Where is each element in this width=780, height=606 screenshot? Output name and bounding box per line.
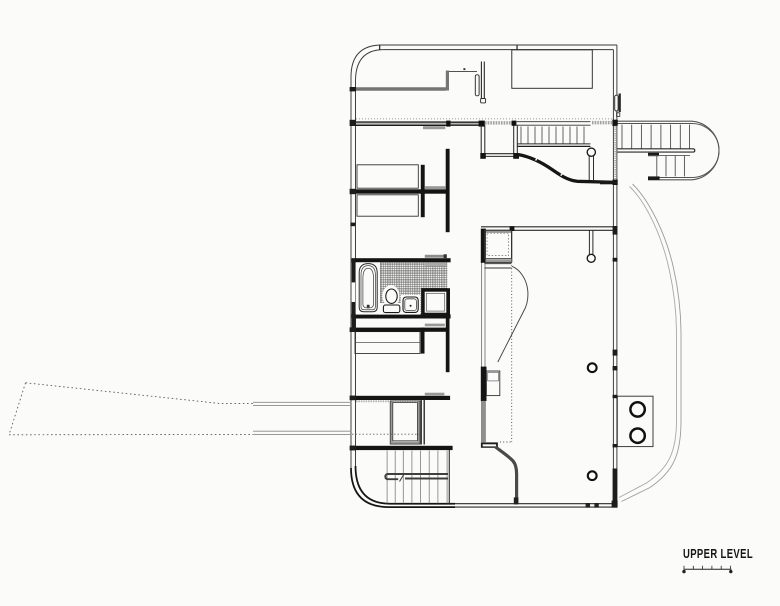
svg-text:UPPER LEVEL: UPPER LEVEL — [683, 546, 753, 561]
